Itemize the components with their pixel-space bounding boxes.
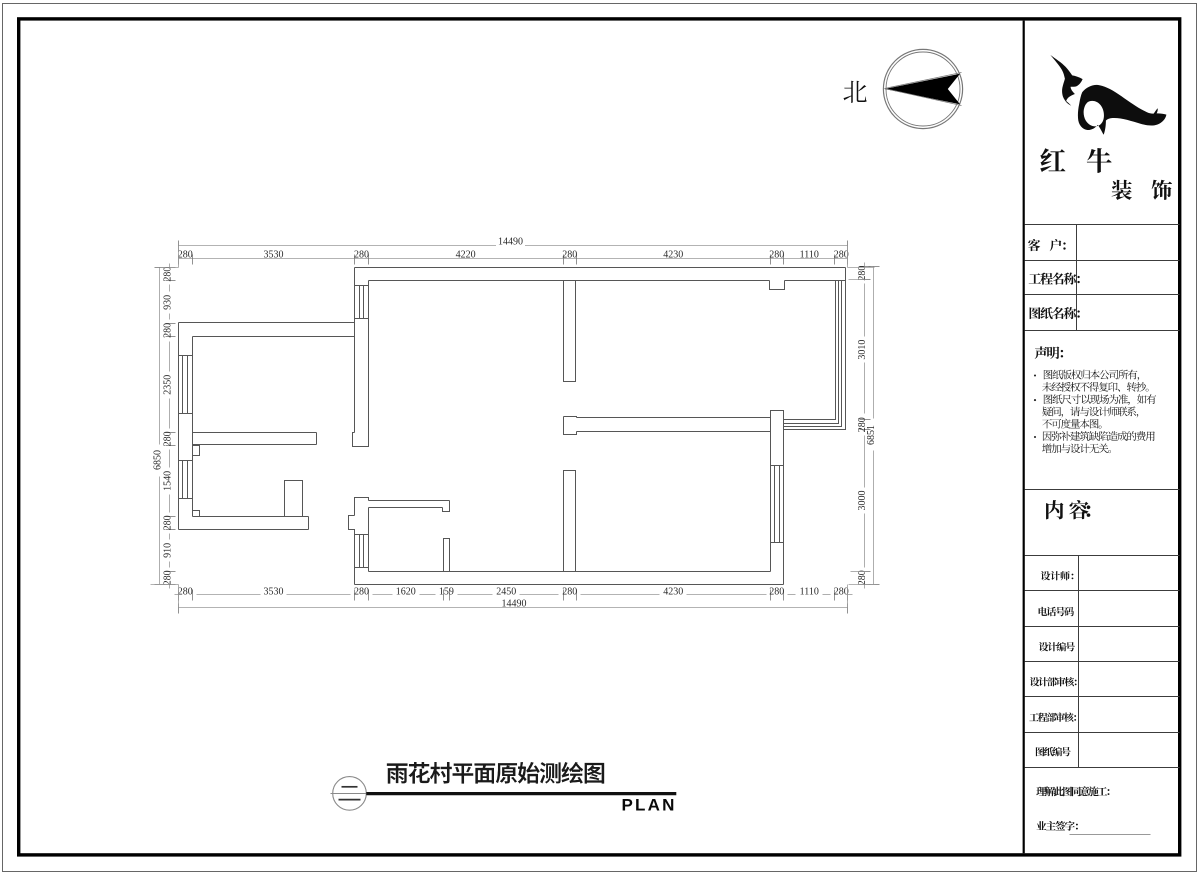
- svg-text:280: 280: [163, 267, 174, 282]
- svg-text:2450: 2450: [496, 587, 516, 598]
- svg-text:14490: 14490: [502, 599, 527, 610]
- svg-text:14490: 14490: [498, 236, 523, 247]
- svg-text:4220: 4220: [456, 249, 476, 260]
- svg-text:280: 280: [163, 515, 174, 530]
- svg-text:3530: 3530: [264, 587, 284, 598]
- svg-text:280: 280: [354, 249, 369, 260]
- svg-text:159: 159: [439, 587, 454, 598]
- svg-text:280: 280: [178, 249, 193, 260]
- svg-text:280: 280: [834, 587, 849, 598]
- svg-text:280: 280: [163, 570, 174, 585]
- svg-text:280: 280: [769, 587, 784, 598]
- svg-text:1620: 1620: [396, 587, 416, 598]
- svg-text:930: 930: [163, 295, 174, 310]
- svg-text:280: 280: [562, 587, 577, 598]
- svg-text:6850: 6850: [152, 450, 163, 470]
- svg-text:910: 910: [163, 543, 174, 558]
- svg-text:3530: 3530: [264, 249, 284, 260]
- svg-text:280: 280: [354, 587, 369, 598]
- svg-text:280: 280: [163, 431, 174, 446]
- svg-text:280: 280: [769, 249, 784, 260]
- svg-text:280: 280: [562, 249, 577, 260]
- svg-text:280: 280: [178, 587, 193, 598]
- svg-text:280: 280: [834, 249, 849, 260]
- svg-text:3000: 3000: [857, 491, 868, 511]
- svg-text:4230: 4230: [663, 249, 683, 260]
- svg-text:1540: 1540: [163, 471, 174, 491]
- svg-text:3010: 3010: [857, 340, 868, 360]
- svg-text:4230: 4230: [663, 587, 683, 598]
- svg-text:PLAN: PLAN: [622, 796, 677, 815]
- svg-text:2350: 2350: [163, 375, 174, 395]
- svg-text:6851: 6851: [866, 425, 877, 445]
- svg-text:280: 280: [163, 323, 174, 338]
- svg-text:1110: 1110: [800, 587, 819, 598]
- svg-text:280: 280: [857, 570, 868, 585]
- svg-text:1110: 1110: [800, 249, 819, 260]
